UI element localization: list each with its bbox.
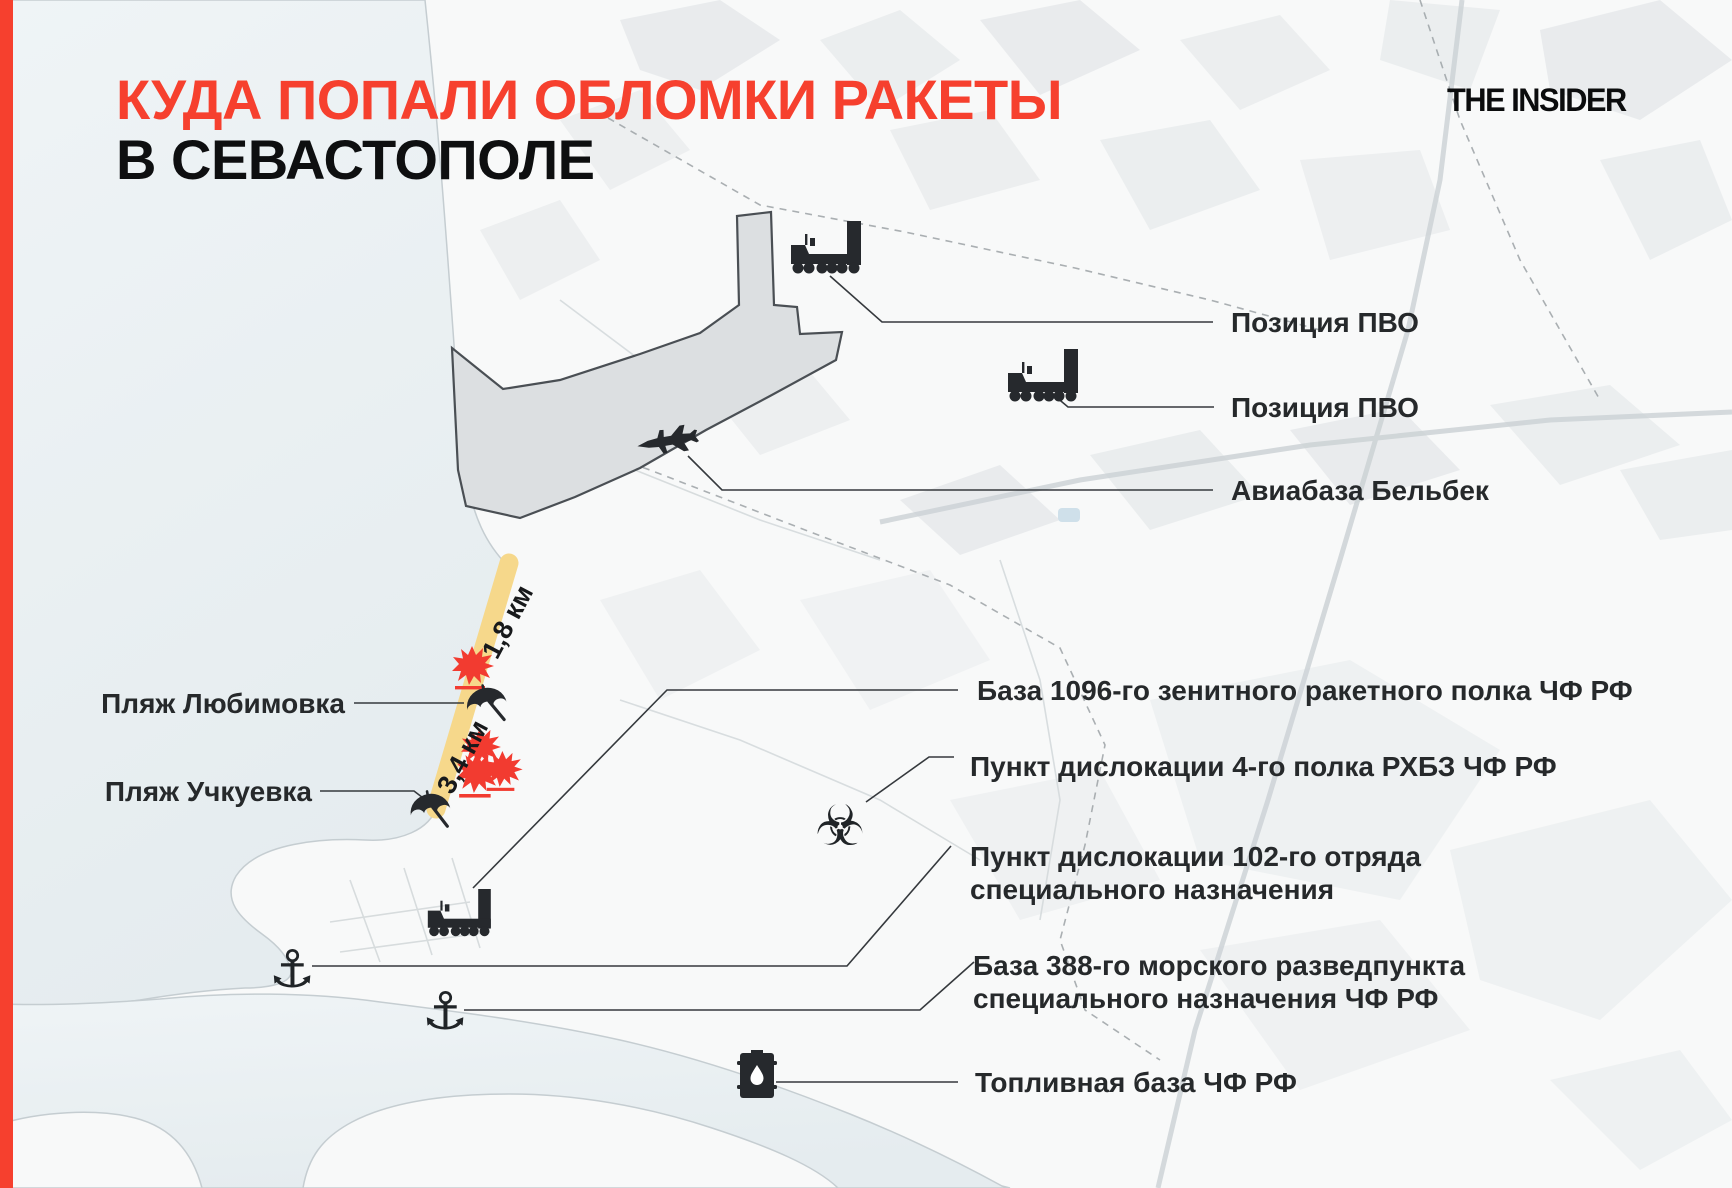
label-base-388: База 388-го морского разведпункта специа…	[973, 949, 1465, 1015]
label-rhbz-regiment-4: Пункт дислокации 4-го полка РХБЗ ЧФ РФ	[970, 750, 1557, 783]
label-lyubimovka-beach: Пляж Любимовка	[101, 687, 345, 720]
title-line-2: В СЕВАСТОПОЛЕ	[116, 130, 1062, 190]
label-fuel-base: Топливная база ЧФ РФ	[975, 1066, 1297, 1099]
leader-pvo-1	[830, 276, 1213, 322]
label-belbek-airbase: Авиабаза Бельбек	[1231, 474, 1489, 507]
infographic-canvas: КУДА ПОПАЛИ ОБЛОМКИ РАКЕТЫ В СЕВАСТОПОЛЕ…	[0, 0, 1732, 1188]
explosion-icon-4	[484, 751, 523, 791]
anchor-icon-1: ⚓	[269, 944, 316, 996]
label-pvo-position-2: Позиция ПВО	[1231, 391, 1419, 424]
leader-base-388	[464, 962, 974, 1010]
sam-launcher-icon-2	[1008, 349, 1078, 402]
label-pvo-position-1: Позиция ПВО	[1231, 306, 1419, 339]
the-insider-logo: THE INSIDER	[1447, 82, 1626, 119]
label-detachment-102-line1: Пункт дислокации 102-го отряда	[970, 840, 1421, 873]
label-uchkuevka-beach: Пляж Учкуевка	[105, 775, 312, 808]
leader-detachment-102	[312, 846, 951, 966]
label-detachment-102: Пункт дислокации 102-го отряда специальн…	[970, 840, 1421, 906]
leader-rhbz-4	[866, 757, 954, 802]
accent-bar	[0, 0, 13, 1188]
anchor-icon-2: ⚓	[422, 986, 469, 1038]
sam-launcher-icon-1	[791, 221, 861, 274]
biohazard-icon: ☣	[815, 799, 865, 855]
title-line-1: КУДА ПОПАЛИ ОБЛОМКИ РАКЕТЫ	[116, 70, 1062, 130]
sam-launcher-icon-3	[428, 889, 491, 936]
label-base-388-line1: База 388-го морского разведпункта	[973, 949, 1465, 982]
label-base-1096: База 1096-го зенитного ракетного полка Ч…	[977, 674, 1633, 707]
label-detachment-102-line2: специального назначения	[970, 873, 1421, 906]
page-title: КУДА ПОПАЛИ ОБЛОМКИ РАКЕТЫ В СЕВАСТОПОЛЕ	[116, 70, 1062, 190]
label-base-388-line2: специального назначения ЧФ РФ	[973, 982, 1465, 1015]
fuel-barrel-icon	[737, 1050, 777, 1098]
